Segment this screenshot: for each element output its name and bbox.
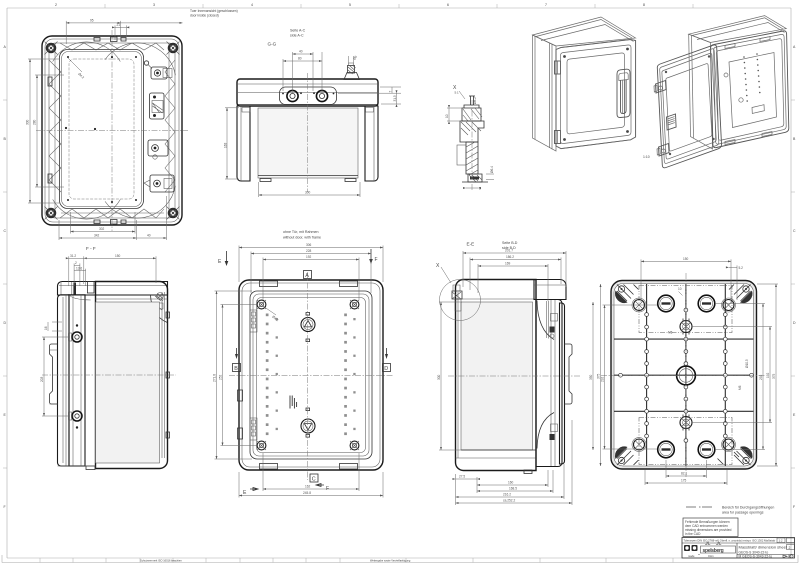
svg-text:169: 169: [505, 262, 511, 266]
svg-text:10: 10: [678, 287, 682, 291]
svg-text:2: 2: [75, 261, 77, 265]
svg-text:300: 300: [26, 119, 30, 125]
svg-text:271.8: 271.8: [213, 374, 217, 382]
svg-text:16: 16: [44, 326, 48, 330]
svg-text:5: 5: [349, 3, 351, 7]
svg-text:82.1: 82.1: [681, 472, 687, 476]
svg-text:2: 2: [789, 546, 791, 550]
svg-text:Ø6.4: Ø6.4: [490, 166, 494, 173]
svg-text:lzürn: lzürn: [708, 554, 714, 558]
svg-text:Schutzvermerk ISO 16016 beacht: Schutzvermerk ISO 16016 beachten: [140, 559, 182, 563]
svg-text:F: F: [375, 257, 378, 263]
svg-text:F: F: [4, 505, 6, 509]
svg-text:without door, with frame: without door, with frame: [283, 236, 321, 240]
svg-text:252: 252: [219, 374, 223, 380]
svg-text:160: 160: [508, 481, 514, 485]
svg-text:186.2: 186.2: [506, 255, 514, 259]
svg-text:B: B: [234, 366, 238, 372]
svg-text:in the CAD: in the CAD: [685, 532, 701, 536]
svg-text:342: 342: [94, 234, 100, 238]
svg-text:10: 10: [445, 114, 449, 118]
svg-text:Weitergabe sowie Vervielfaelti: Weitergabe sowie Vervielfaeltigung: [370, 559, 411, 563]
svg-text:Ø8.2: Ø8.2: [473, 97, 477, 104]
svg-text:5:1: 5:1: [455, 91, 460, 95]
svg-text:made: made: [688, 554, 695, 558]
svg-text:Bereich für Durchgangsöffnunge: Bereich für Durchgangsöffnungen: [722, 506, 774, 510]
svg-text:192: 192: [766, 372, 770, 378]
svg-text:192: 192: [306, 255, 312, 259]
svg-text:G-G: G-G: [268, 42, 277, 47]
svg-text:216.2: 216.2: [503, 493, 511, 497]
svg-text:375: 375: [772, 373, 776, 379]
svg-text:F - F: F - F: [86, 246, 96, 251]
svg-text:150: 150: [683, 257, 689, 261]
svg-text:8: 8: [643, 3, 645, 7]
svg-text:40: 40: [299, 50, 303, 54]
svg-text:150: 150: [115, 254, 121, 258]
svg-text:27.5: 27.5: [459, 475, 465, 479]
svg-text:Massblatt/ dimension sheet: Massblatt/ dimension sheet: [739, 545, 788, 550]
svg-text:ohne Tür, mit Rahmen: ohne Tür, mit Rahmen: [283, 230, 319, 234]
svg-text:Seite A-C: Seite A-C: [290, 29, 306, 33]
svg-text:M6: M6: [668, 331, 673, 335]
svg-text:door inside (closed): door inside (closed): [190, 14, 219, 18]
svg-text:80: 80: [298, 57, 302, 61]
svg-text:Tuer Innenansicht (geschlossen: Tuer Innenansicht (geschlossen): [190, 9, 238, 13]
svg-text:31.2: 31.2: [70, 254, 76, 258]
svg-text:4: 4: [251, 3, 253, 7]
svg-text:E-E: E-E: [467, 242, 475, 247]
svg-text:292: 292: [601, 376, 605, 382]
svg-text:40: 40: [147, 234, 151, 238]
svg-text:5.2: 5.2: [739, 266, 744, 270]
svg-text:245.8: 245.8: [303, 491, 311, 495]
svg-text:201.7: 201.7: [505, 249, 513, 253]
svg-text:C: C: [312, 477, 316, 483]
svg-text:side A-C: side A-C: [290, 34, 304, 38]
svg-text:292: 292: [759, 374, 763, 380]
svg-text:31.5: 31.5: [393, 95, 397, 101]
svg-text:2: 2: [55, 3, 57, 7]
svg-text:350: 350: [589, 374, 593, 380]
svg-text:1:10: 1:10: [643, 155, 650, 159]
svg-text:M6: M6: [738, 385, 742, 390]
svg-text:area for passage openings: area for passage openings: [722, 511, 764, 515]
svg-text:280: 280: [33, 119, 37, 125]
svg-text:302: 302: [99, 227, 105, 231]
svg-text:228: 228: [306, 249, 312, 253]
svg-text:spelsberg: spelsberg: [703, 548, 724, 554]
svg-text:300: 300: [437, 374, 441, 380]
svg-text:F: F: [793, 505, 795, 509]
svg-text:95: 95: [90, 18, 94, 22]
svg-text:M GEOS-S-3043-22-to: M GEOS-S-3043-22-to: [739, 555, 773, 559]
svg-text:Maßstab: Maßstab: [764, 539, 776, 543]
svg-text:A: A: [305, 273, 309, 279]
svg-text:5: 5: [479, 187, 481, 191]
svg-text:D: D: [384, 366, 388, 372]
svg-text:3: 3: [153, 3, 155, 7]
svg-text:Seite B-D: Seite B-D: [502, 241, 518, 245]
svg-text:13.6: 13.6: [76, 266, 82, 270]
svg-text:ca.252.2: ca.252.2: [503, 499, 515, 503]
svg-text:7: 7: [545, 3, 547, 7]
svg-text:6: 6: [447, 3, 449, 7]
svg-text:306: 306: [306, 243, 312, 247]
svg-text:175: 175: [681, 479, 687, 483]
svg-text:162: 162: [305, 485, 311, 489]
svg-text:163: 163: [224, 142, 228, 148]
svg-text:203: 203: [40, 376, 44, 382]
svg-text:21: 21: [117, 23, 121, 27]
svg-text:7: 7: [389, 91, 393, 93]
svg-text:300: 300: [305, 191, 311, 195]
svg-text:1:2: 1:2: [779, 539, 783, 543]
svg-text:Toleranzen DIN ISO 2768-mK Ob: Toleranzen DIN ISO 2768-mK Oberfl. n. pr…: [684, 539, 764, 543]
svg-text:Ø10.5: Ø10.5: [745, 359, 749, 368]
svg-text:168.5: 168.5: [509, 487, 517, 491]
